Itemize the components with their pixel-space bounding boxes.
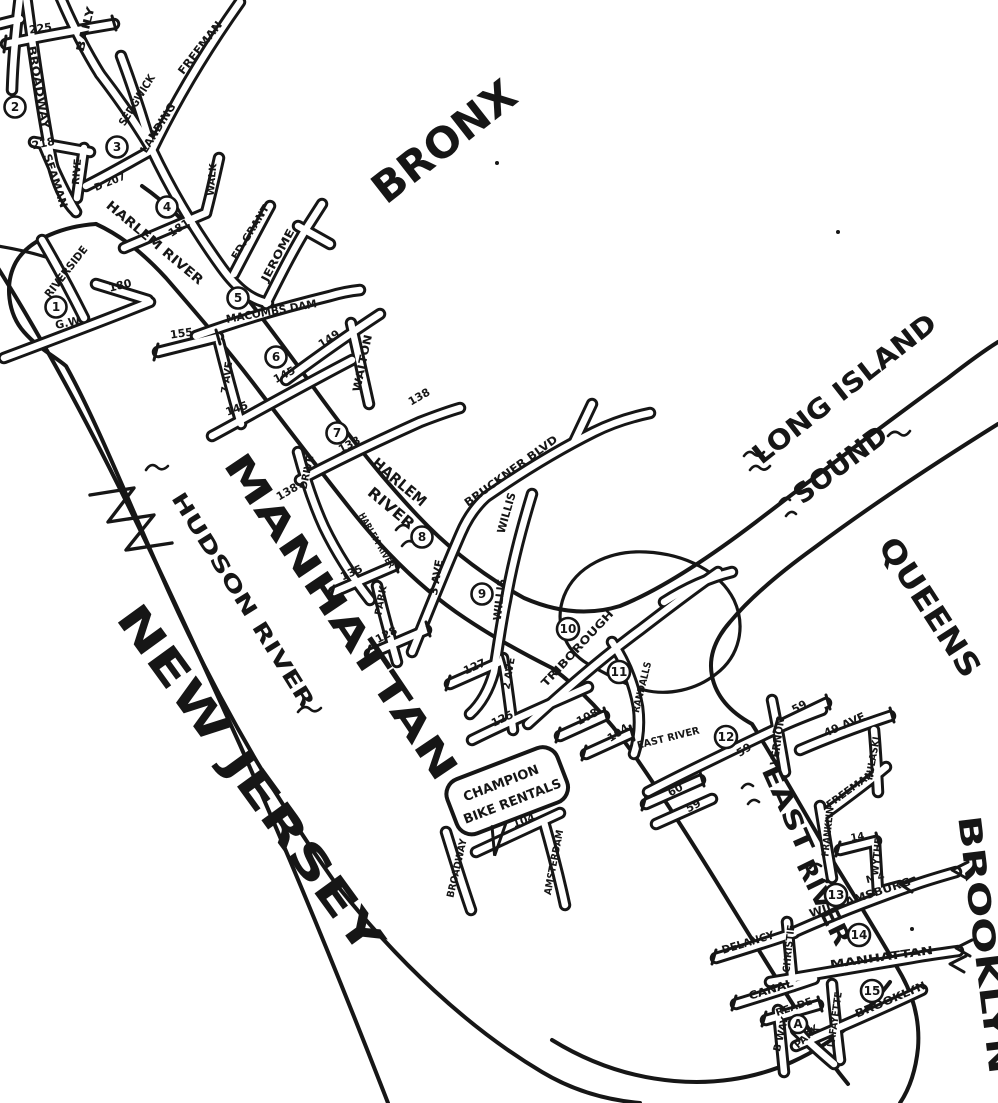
street-label-rive: RIVE bbox=[71, 158, 84, 185]
bridge-marker-7-label: 7 bbox=[333, 426, 341, 440]
bridge-marker-13-label: 13 bbox=[828, 888, 845, 902]
bridge-marker-14-label: 14 bbox=[851, 928, 868, 942]
pen-dot-3 bbox=[910, 927, 914, 931]
bridge-marker-3: 3 bbox=[107, 137, 128, 158]
bridge-marker-8: 8 bbox=[412, 527, 433, 548]
bridge-marker-12: 12 bbox=[715, 726, 737, 748]
map-canvas: BRONX MANHATTAN NEW JERSEY QUEENS BROOKL… bbox=[0, 0, 998, 1103]
bridge-marker-5-label: 5 bbox=[234, 291, 242, 305]
bridge-marker-10-label: 10 bbox=[560, 622, 577, 636]
bridge-marker-4-label: 4 bbox=[163, 200, 171, 214]
street-label-harlem-river-drive: HARLEM RIVER bbox=[356, 512, 396, 571]
bridge-marker-11-label: 11 bbox=[611, 665, 628, 679]
bridge-marker-2-label: 2 bbox=[11, 100, 19, 114]
street-label-freeman-bk: FREEMAN bbox=[825, 769, 877, 811]
water-label-east-word: EAST bbox=[756, 761, 820, 857]
bridge-marker-13: 13 bbox=[825, 884, 847, 906]
bridge-marker-6-label: 6 bbox=[272, 350, 280, 364]
bridge-marker-11: 11 bbox=[608, 661, 630, 683]
bridge-marker-12-label: 12 bbox=[718, 730, 735, 744]
bridge-marker-14: 14 bbox=[848, 924, 870, 946]
marker-a-label: A bbox=[793, 1017, 803, 1031]
bridge-marker-6: 6 bbox=[266, 347, 287, 368]
region-label-queens: QUEENS bbox=[871, 531, 988, 685]
hudson-river-zigzag bbox=[90, 488, 172, 550]
water-label-east-river-small: EAST RIVER bbox=[636, 725, 701, 751]
sound-squiggle-left bbox=[780, 498, 796, 516]
bridge-marker-1: 1 bbox=[46, 297, 67, 318]
bridge-marker-15: 15 bbox=[861, 980, 883, 1002]
bridge-marker-2: 2 bbox=[5, 97, 26, 118]
street-label-willis-upper: WILLIS bbox=[495, 491, 519, 535]
bridge-marker-1-label: 1 bbox=[52, 300, 60, 314]
hand-drawn-nyc-bike-map: BRONX MANHATTAN NEW JERSEY QUEENS BROOKL… bbox=[0, 0, 998, 1103]
bridge-marker-10: 10 bbox=[557, 618, 579, 640]
bridge-marker-4: 4 bbox=[157, 197, 178, 218]
pen-dot-2 bbox=[836, 230, 840, 234]
marker-a: A bbox=[789, 1015, 807, 1033]
hudson-squiggle-top bbox=[146, 465, 168, 470]
water-labels: HUDSON RIVER HARLEM RIVER HARLEM RIVER E… bbox=[103, 198, 943, 950]
east-river-squiggle-1 bbox=[742, 784, 759, 804]
pen-dot-1 bbox=[495, 161, 499, 165]
bridge-marker-8-label: 8 bbox=[418, 530, 426, 544]
manhattan-bridge-arrow-2 bbox=[950, 956, 966, 972]
bridge-marker-3-label: 3 bbox=[113, 140, 121, 154]
street-label-138-bronx: 138 bbox=[406, 386, 432, 409]
street-label-broadway-top: BROADWAY bbox=[25, 45, 53, 131]
bridge-marker-15-label: 15 bbox=[864, 984, 881, 998]
region-label-bronx: BRONX bbox=[362, 70, 526, 213]
sound-squiggle-tail bbox=[888, 431, 910, 436]
bridge-marker-9-label: 9 bbox=[478, 587, 486, 601]
bridge-marker-9: 9 bbox=[472, 584, 493, 605]
bridge-marker-7: 7 bbox=[327, 423, 348, 444]
bridge-marker-5: 5 bbox=[228, 288, 249, 309]
